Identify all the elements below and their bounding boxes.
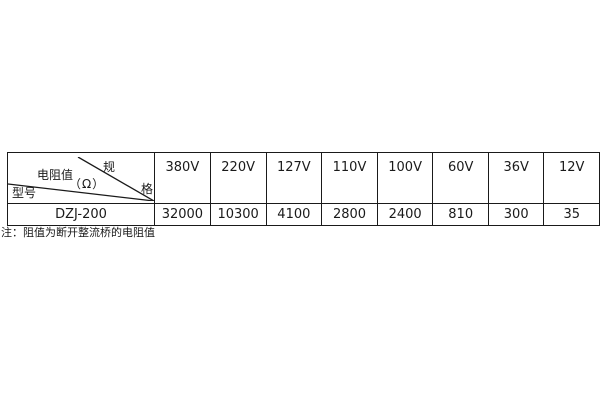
page: 规 格 电阻值 （Ω） 型号 380V 220V 127V 110V 100V … bbox=[0, 0, 600, 400]
voltage-header-220v: 220V bbox=[210, 153, 266, 204]
voltage-header-36v: 36V bbox=[488, 153, 544, 204]
corner-header-cell: 规 格 电阻值 （Ω） 型号 bbox=[8, 153, 155, 204]
voltage-header-110v: 110V bbox=[322, 153, 378, 204]
resistance-value-100v: 2400 bbox=[377, 204, 433, 226]
voltage-header-12v: 12V bbox=[544, 153, 600, 204]
corner-label-resistance-unit: （Ω） bbox=[69, 178, 105, 191]
corner-header-inner: 规 格 电阻值 （Ω） 型号 bbox=[8, 157, 154, 200]
resistance-value-127v: 4100 bbox=[266, 204, 322, 226]
corner-label-spec-bottom: 格 bbox=[141, 183, 153, 196]
resistance-value-36v: 300 bbox=[488, 204, 544, 226]
model-data-row: DZJ-200 32000 10300 4100 2800 2400 810 3… bbox=[8, 204, 600, 226]
resistance-value-110v: 2800 bbox=[322, 204, 378, 226]
resistance-value-60v: 810 bbox=[433, 204, 489, 226]
voltage-header-380v: 380V bbox=[155, 153, 211, 204]
voltage-header-100v: 100V bbox=[377, 153, 433, 204]
corner-label-spec-top: 规 bbox=[103, 161, 115, 174]
resistance-value-380v: 32000 bbox=[155, 204, 211, 226]
resistance-value-12v: 35 bbox=[544, 204, 600, 226]
voltage-header-60v: 60V bbox=[433, 153, 489, 204]
note-text: 注：阻值为断开整流桥的电阻值 bbox=[1, 226, 155, 239]
model-cell: DZJ-200 bbox=[8, 204, 155, 226]
resistance-value-220v: 10300 bbox=[210, 204, 266, 226]
voltage-header-127v: 127V bbox=[266, 153, 322, 204]
corner-label-resistance: 电阻值 bbox=[37, 169, 73, 182]
header-row: 规 格 电阻值 （Ω） 型号 380V 220V 127V 110V 100V … bbox=[8, 153, 600, 204]
corner-label-model: 型号 bbox=[12, 187, 36, 200]
spec-table: 规 格 电阻值 （Ω） 型号 380V 220V 127V 110V 100V … bbox=[7, 152, 600, 226]
